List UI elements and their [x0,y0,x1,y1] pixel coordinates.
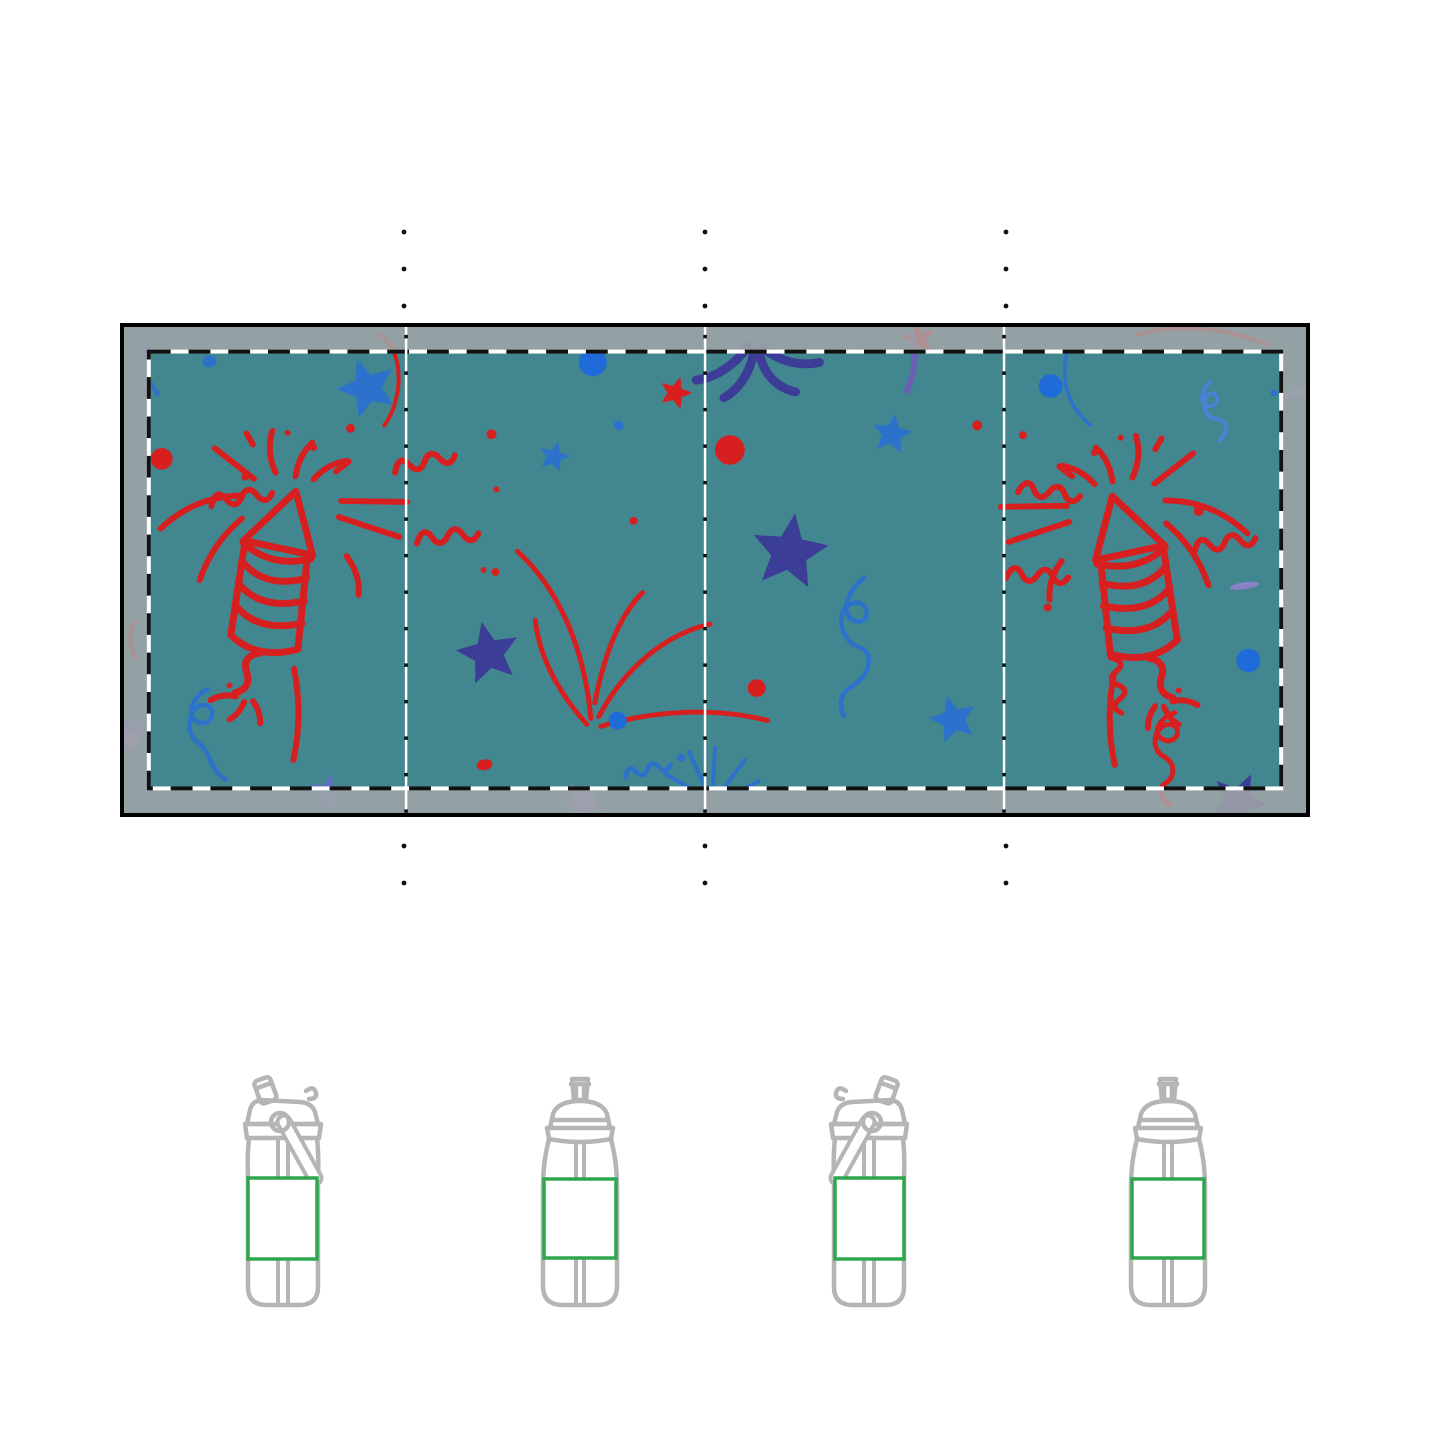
confetti-dot [748,679,766,697]
bottle-preview-3 [814,1075,924,1315]
confetti-dot [972,420,982,430]
confetti-dot [1271,389,1278,396]
template-canvas [0,0,1445,1445]
print-area-indicator[interactable] [1132,1179,1204,1258]
design-area[interactable] [120,323,1310,817]
confetti-dot [202,356,216,368]
print-area-indicator[interactable] [248,1178,317,1259]
print-area-indicator[interactable] [835,1178,904,1259]
confetti-dot [481,567,487,573]
print-area-indicator[interactable] [544,1179,616,1258]
confetti-dot [241,473,249,481]
confetti-dot [1044,603,1052,611]
confetti-dot [346,424,355,433]
confetti-dot [715,435,745,465]
confetti-dot [609,712,627,730]
bottle-preview-1 [228,1075,338,1315]
bottle-preview-2 [530,1075,630,1315]
confetti-dot [151,448,173,470]
confetti-dot [614,420,624,430]
confetti-dot [493,486,499,492]
confetti-dot [492,568,500,576]
bottle-preview-4 [1118,1075,1218,1315]
confetti-dot [1194,506,1204,516]
confetti-dot [487,429,497,439]
confetti-dot [1039,374,1063,398]
design-background [124,327,1306,813]
confetti-dot [1019,431,1027,439]
confetti-dot [1236,649,1260,673]
confetti-dot [630,517,638,525]
